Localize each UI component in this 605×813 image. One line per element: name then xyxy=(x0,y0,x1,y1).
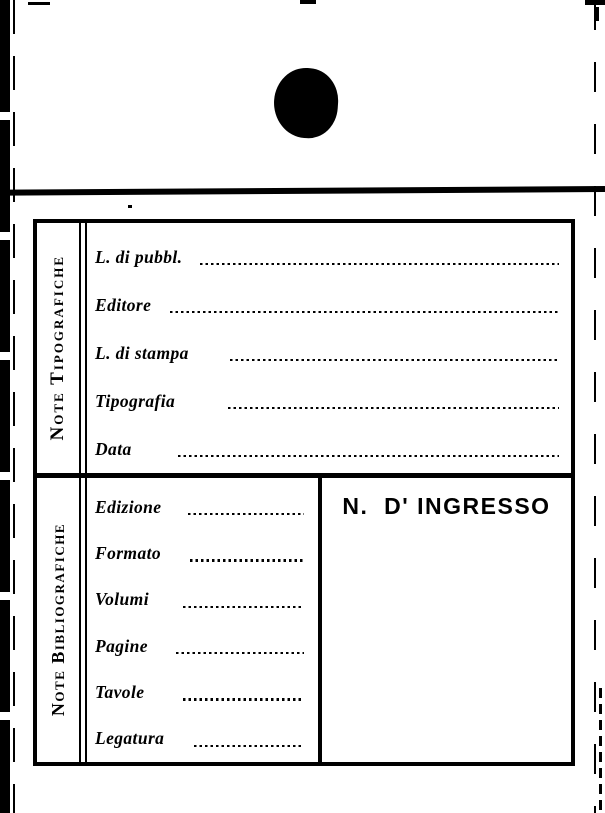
scanned-library-card: Note Tipografiche L. di pubbl. Editore L… xyxy=(0,0,605,813)
field-row-legatura: Legatura xyxy=(95,716,304,762)
dotted-fill-line xyxy=(183,606,304,609)
dotted-fill-line xyxy=(170,311,559,314)
scan-edge-left-bar xyxy=(0,0,10,813)
ingresso-title: N. D' INGRESSO xyxy=(322,493,571,520)
tipografiche-title: Note Tipografiche xyxy=(47,255,69,440)
scan-edge-left-line xyxy=(13,0,15,813)
scan-mark-top-right xyxy=(585,0,605,5)
tipografiche-fields: L. di pubbl. Editore L. di stampa Tipogr… xyxy=(87,223,571,473)
scan-mark-top-left xyxy=(28,2,50,5)
field-row-editore: Editore xyxy=(95,281,559,329)
section-note-tipografiche: Note Tipografiche L. di pubbl. Editore L… xyxy=(33,219,575,478)
hole-punch xyxy=(272,66,341,140)
bibliografiche-title: Note Bibliografiche xyxy=(48,523,69,716)
field-label: Tavole xyxy=(95,682,183,703)
dotted-fill-line xyxy=(194,745,304,748)
field-label: Data xyxy=(95,439,178,460)
field-label: Edizione xyxy=(95,497,188,518)
ingresso-column: N. D' INGRESSO xyxy=(322,478,571,762)
section-note-bibliografiche: Note Bibliografiche Edizione Formato Vol… xyxy=(33,478,575,766)
scan-mark-top-right-2 xyxy=(595,7,599,21)
dotted-fill-line xyxy=(188,513,304,516)
field-row-l-di-stampa: L. di stampa xyxy=(95,329,559,377)
double-rule xyxy=(79,478,87,762)
field-label: L. di pubbl. xyxy=(95,247,200,268)
field-row-tavole: Tavole xyxy=(95,669,304,715)
card-fold-line xyxy=(8,186,605,196)
field-label: Pagine xyxy=(95,636,176,657)
double-rule xyxy=(79,223,87,473)
scan-speck xyxy=(128,205,132,208)
field-label: Legatura xyxy=(95,728,194,749)
dotted-fill-line xyxy=(183,698,304,701)
field-label: Formato xyxy=(95,543,190,564)
field-row-volumi: Volumi xyxy=(95,577,304,623)
bibliografiche-title-column: Note Bibliografiche xyxy=(37,478,79,762)
bibliografiche-fields: Edizione Formato Volumi Pagine Tavole Le… xyxy=(87,478,318,762)
scan-mark-top-center xyxy=(300,0,316,4)
dotted-fill-line xyxy=(190,559,304,562)
scan-edge-right-line-bottom xyxy=(599,688,602,813)
dotted-fill-line xyxy=(176,652,304,655)
field-row-data: Data xyxy=(95,425,559,473)
field-row-l-di-pubbl: L. di pubbl. xyxy=(95,233,559,281)
field-label: L. di stampa xyxy=(95,343,230,364)
field-row-formato: Formato xyxy=(95,530,304,576)
field-label: Volumi xyxy=(95,589,183,610)
field-row-tipografia: Tipografia xyxy=(95,377,559,425)
dotted-fill-line xyxy=(178,455,559,458)
field-label: Tipografia xyxy=(95,391,228,412)
dotted-fill-line xyxy=(200,263,559,266)
tipografiche-title-column: Note Tipografiche xyxy=(37,223,79,473)
field-row-edizione: Edizione xyxy=(95,484,304,530)
dotted-fill-line xyxy=(230,359,559,362)
dotted-fill-line xyxy=(228,407,559,410)
field-row-pagine: Pagine xyxy=(95,623,304,669)
scan-edge-right-line xyxy=(594,0,596,813)
field-label: Editore xyxy=(95,295,170,316)
